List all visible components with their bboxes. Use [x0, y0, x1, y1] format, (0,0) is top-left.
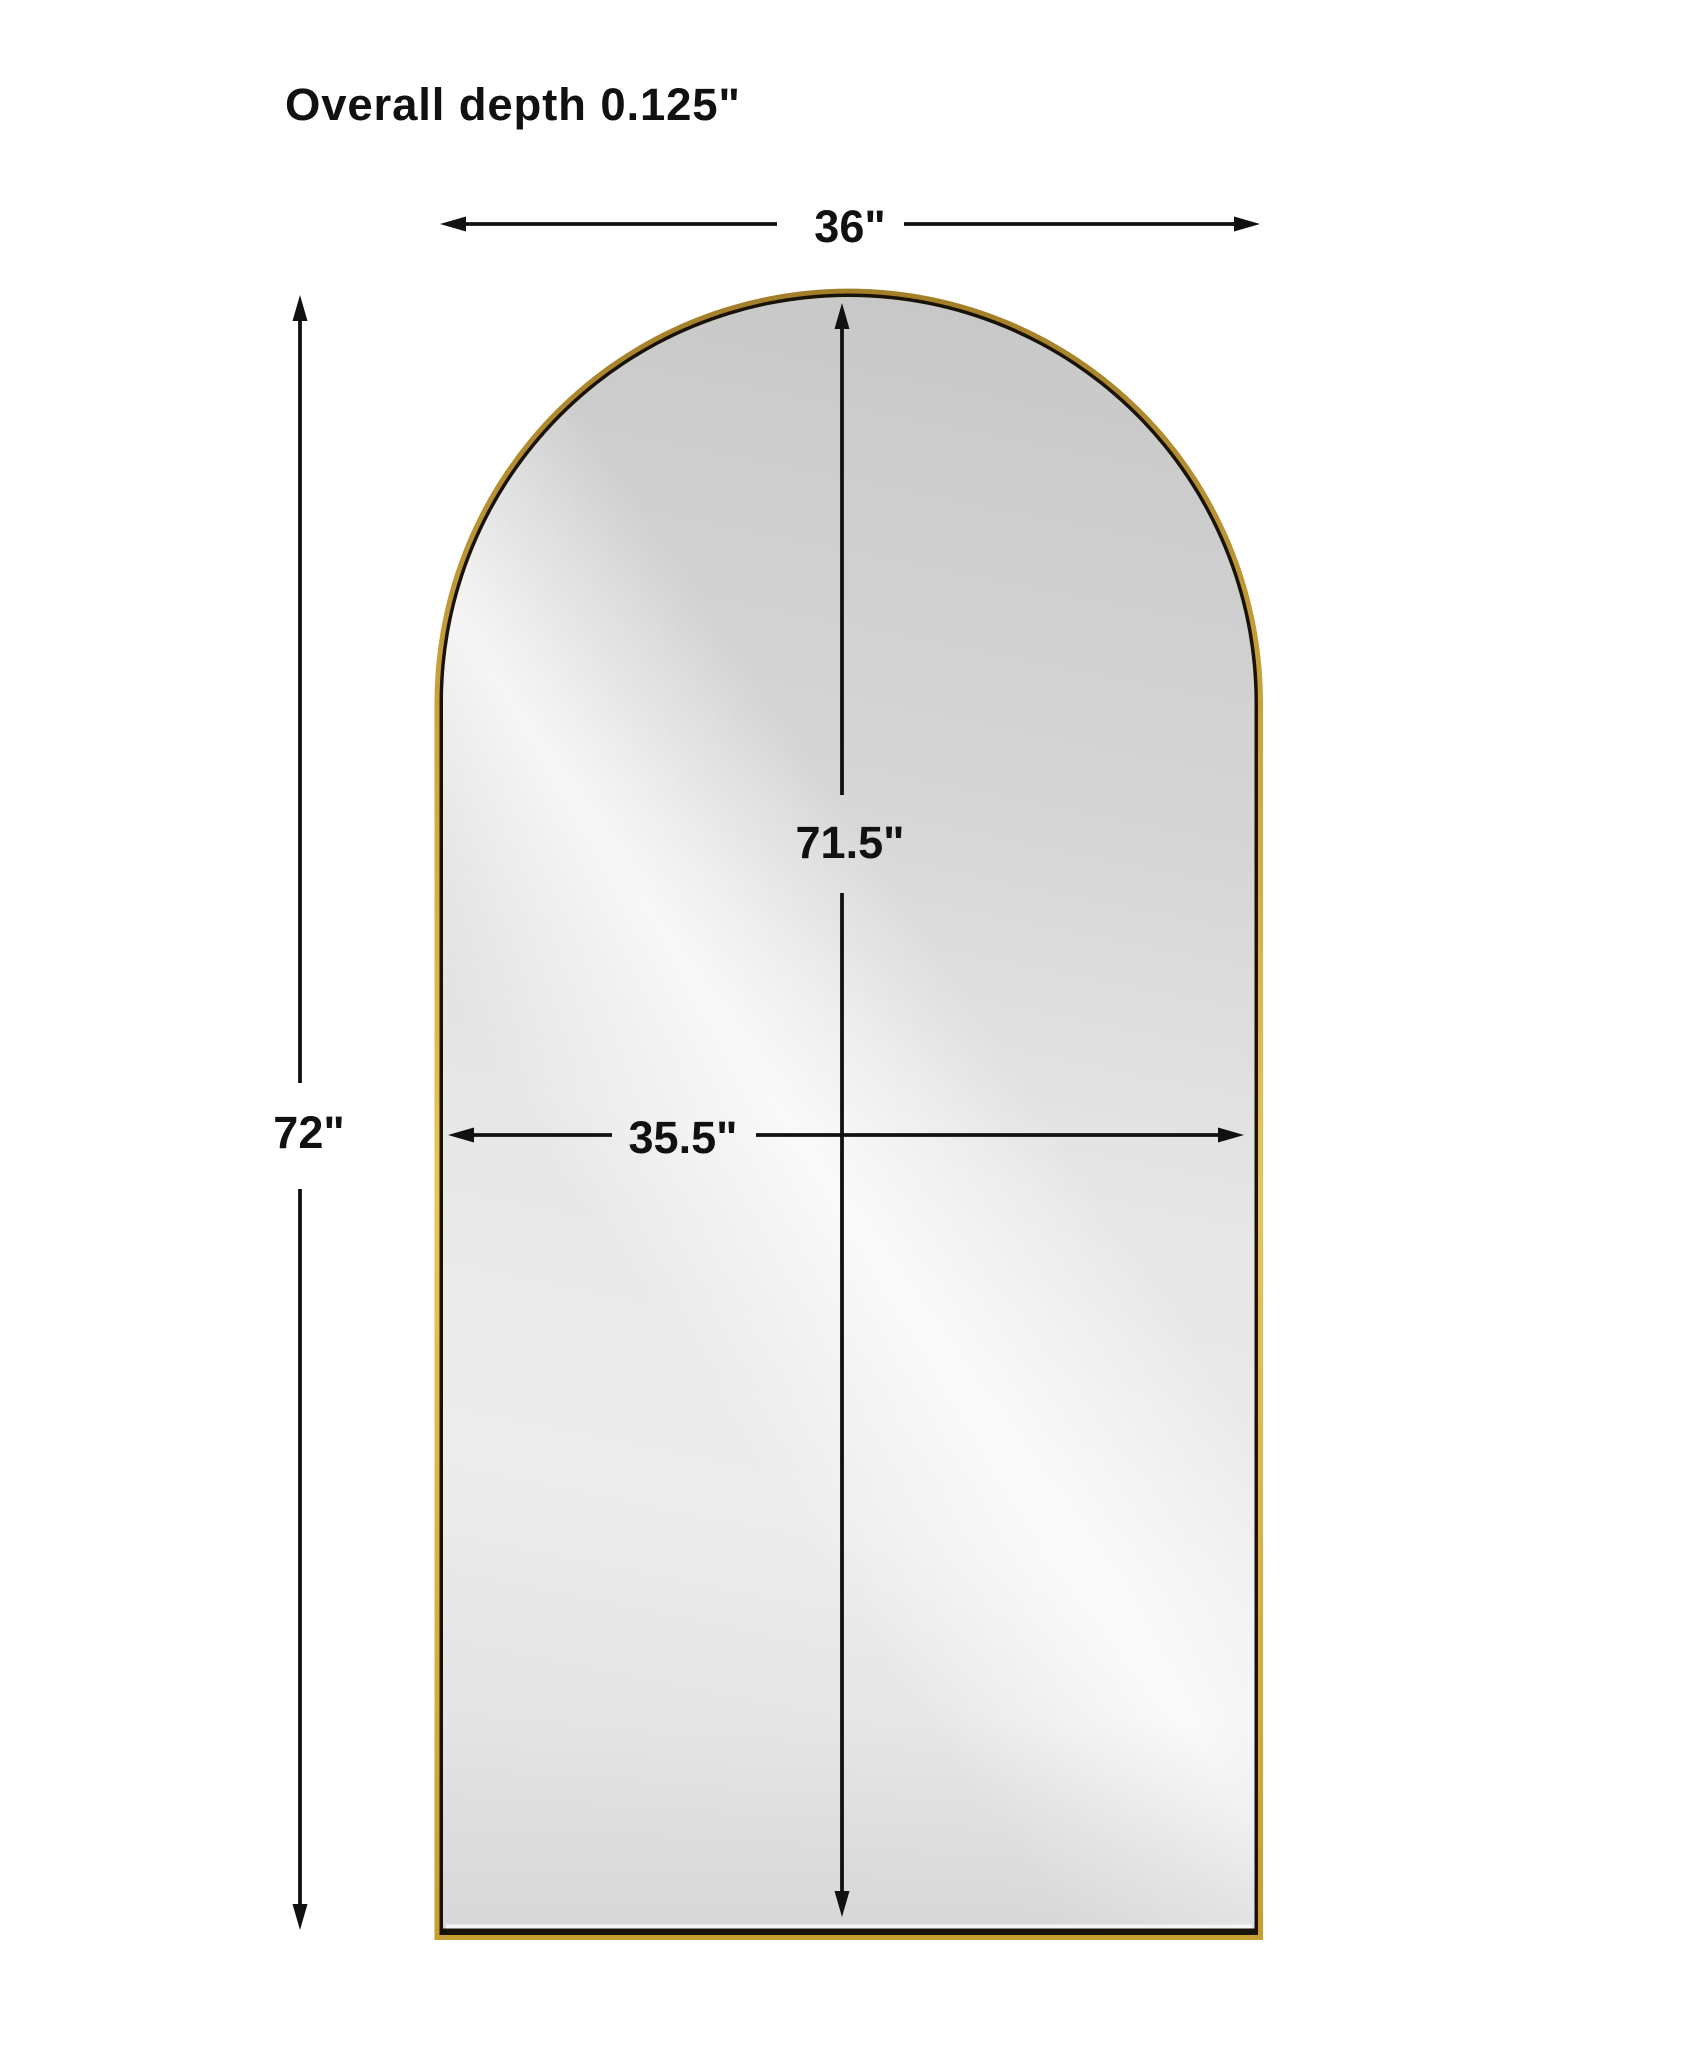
svg-text:71.5": 71.5"	[796, 817, 905, 868]
svg-text:35.5": 35.5"	[629, 1112, 738, 1163]
svg-text:Overall depth 0.125": Overall depth 0.125"	[285, 79, 741, 130]
svg-text:36": 36"	[814, 201, 885, 252]
svg-text:72": 72"	[273, 1107, 344, 1158]
